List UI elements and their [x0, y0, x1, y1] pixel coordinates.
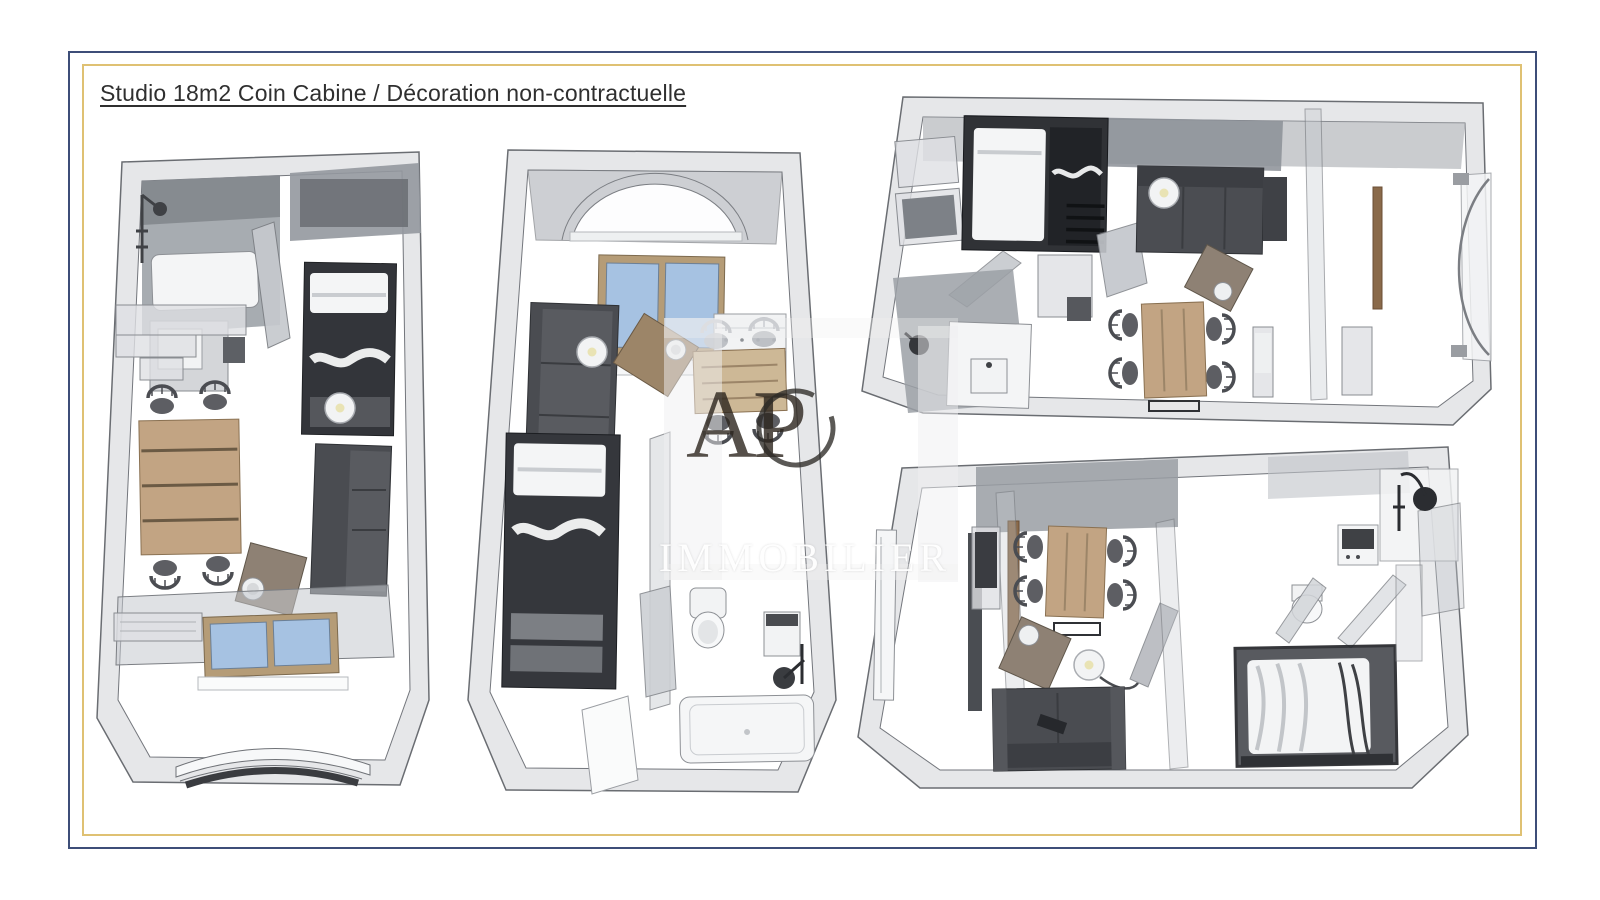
floor-door-leaf	[582, 696, 638, 794]
page-title: Studio 18m2 Coin Cabine / Décoration non…	[100, 80, 686, 107]
floor-lamp	[577, 337, 607, 367]
floorplan-3d-view-1	[90, 145, 432, 790]
sofa	[310, 444, 391, 597]
door-edge	[1373, 187, 1382, 309]
side-table	[1263, 177, 1287, 241]
media-unit	[972, 527, 1000, 609]
floorplan-3d-view-2	[464, 144, 838, 798]
sofa	[1136, 166, 1263, 254]
bunk-bed-cabin	[502, 433, 620, 689]
toilet	[690, 588, 726, 648]
bathtub	[679, 695, 814, 763]
microwave	[1338, 525, 1378, 565]
bunk-bed-cabin	[962, 116, 1108, 252]
floor-lamp	[325, 393, 355, 423]
bed-cabin	[1235, 646, 1397, 767]
floor-lamp	[1149, 178, 1179, 208]
arched-wall	[528, 170, 782, 244]
bathroom-shower	[893, 269, 1031, 413]
window-sill	[198, 677, 348, 690]
floor-lamp	[1074, 650, 1104, 680]
floorplan-3d-view-3	[853, 83, 1498, 435]
window	[203, 613, 339, 678]
page-canvas: Studio 18m2 Coin Cabine / Décoration non…	[0, 0, 1600, 900]
entry-door	[874, 530, 897, 700]
sofa	[992, 687, 1125, 771]
floorplan-3d-view-4	[848, 433, 1470, 791]
wardrobe	[290, 163, 421, 241]
open-door-panel	[640, 586, 676, 697]
